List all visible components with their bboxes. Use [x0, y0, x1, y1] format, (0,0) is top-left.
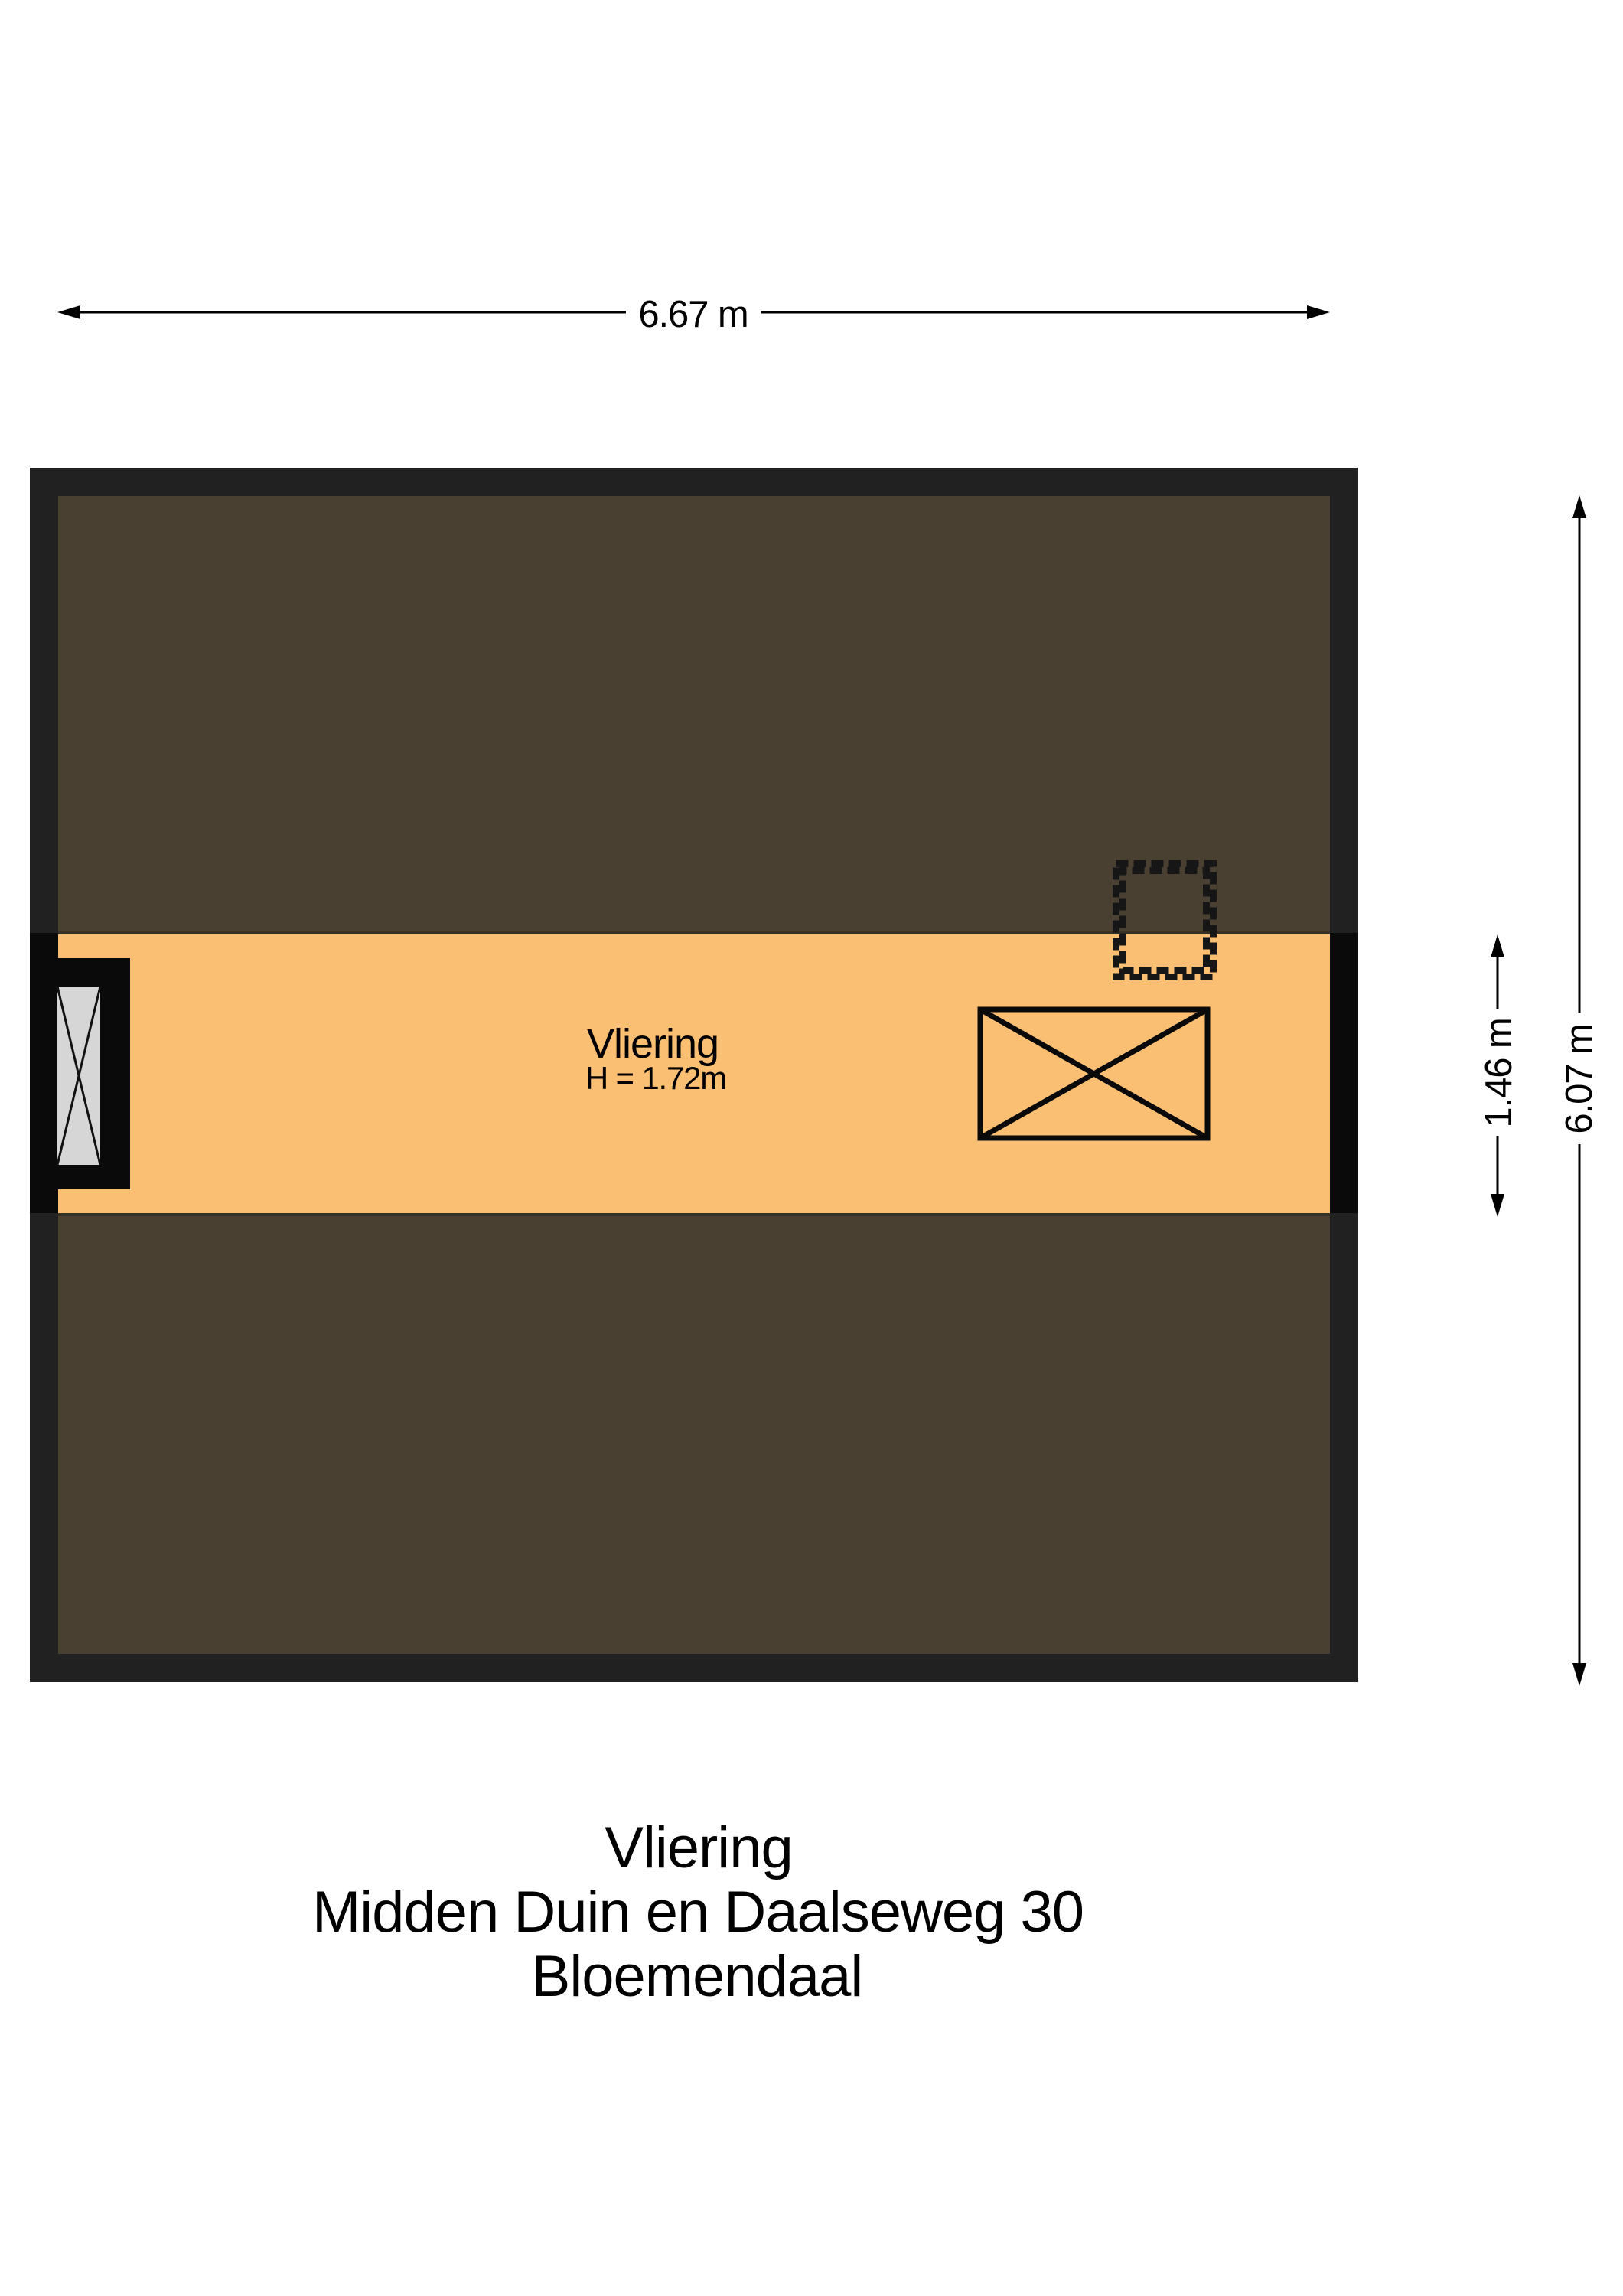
- svg-text:6.67 m: 6.67 m: [638, 294, 748, 335]
- svg-text:1.46 m: 1.46 m: [1478, 1018, 1520, 1127]
- svg-text:Midden Duin en Daalseweg 30: Midden Duin en Daalseweg 30: [312, 1880, 1084, 1945]
- svg-text:Vliering: Vliering: [605, 1815, 792, 1880]
- svg-text:H = 1.72m: H = 1.72m: [585, 1060, 726, 1096]
- svg-text:6.07 m: 6.07 m: [1559, 1024, 1600, 1133]
- svg-text:Bloemendaal: Bloemendaal: [532, 1944, 863, 2009]
